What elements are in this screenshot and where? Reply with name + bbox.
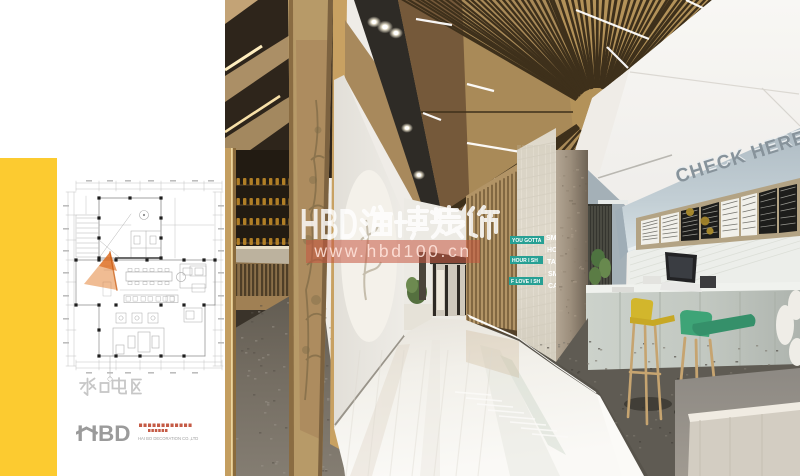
svg-text:HBD: HBD [300, 200, 358, 246]
svg-text:SM: SM [546, 235, 557, 242]
svg-text:TA: TA [547, 259, 556, 266]
svg-text:YOU GOTTA: YOU GOTTA [512, 238, 542, 244]
svg-text:BD: BD [98, 421, 131, 446]
svg-text:HOUR I SH: HOUR I SH [512, 258, 538, 264]
svg-text:F LOVE I SH: F LOVE I SH [511, 279, 541, 285]
svg-text:HAI BO DECORATION CO.,LTD: HAI BO DECORATION CO.,LTD [138, 436, 198, 441]
